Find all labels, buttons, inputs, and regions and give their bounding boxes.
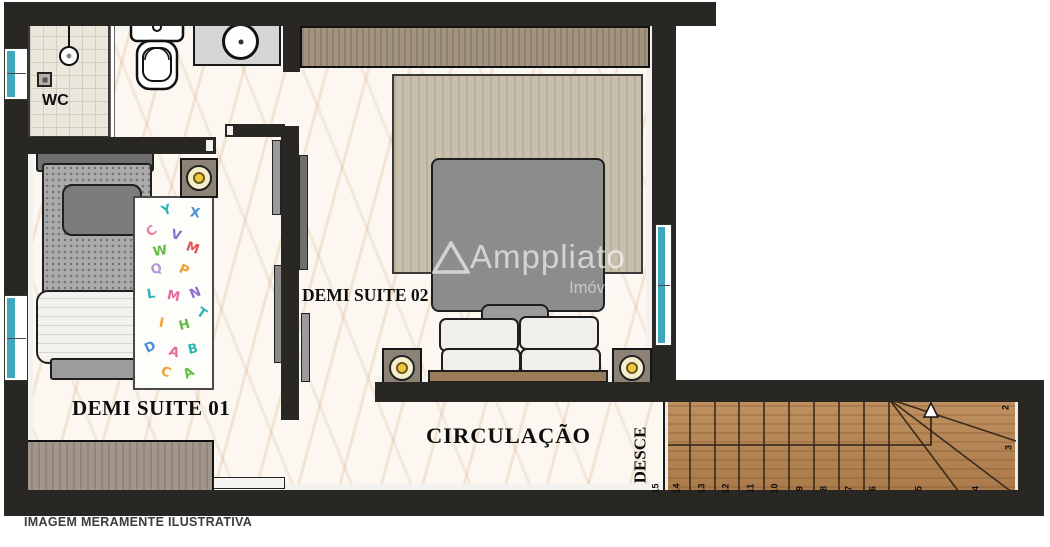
rug-letter: N — [188, 285, 204, 303]
wardrobe-suite01 — [22, 440, 214, 492]
stair-step-number: 14 — [671, 481, 682, 497]
wc-label: WC — [42, 92, 69, 110]
wall-wc-south — [4, 137, 216, 154]
stair-arrow-icon — [924, 403, 938, 417]
rug-letter: M — [166, 288, 182, 305]
floor-plan: WC YXCVWMQPLMNTHIDABCA DEMI SUITE 01 DEM… — [0, 0, 1050, 547]
wall-stairs-top — [652, 380, 1044, 402]
staircase — [663, 398, 1018, 497]
rug-letter: W — [152, 243, 169, 260]
stair-step-number: 15 — [650, 481, 661, 497]
double-bed-pillow — [439, 318, 519, 352]
stair-step-number: 5 — [913, 481, 924, 497]
stair-step-number: 8 — [818, 481, 829, 497]
caption: IMAGEM MERAMENTE ILUSTRATIVA — [24, 515, 252, 529]
stair-walk-line — [668, 414, 931, 445]
suite01-label: DEMI SUITE 01 — [72, 396, 230, 421]
stair-step-number: 4 — [970, 481, 981, 497]
wall-wc-east — [283, 16, 300, 72]
rug-letter: M — [184, 239, 201, 258]
rug-letter: V — [169, 227, 183, 244]
single-bed-pillow — [62, 184, 142, 236]
rug-letter: A — [181, 364, 197, 382]
stair-step-number: 2 — [1000, 400, 1011, 416]
rug-letter: B — [187, 341, 200, 358]
rug-letter: C — [144, 223, 160, 241]
wall-suite02-south — [375, 382, 652, 402]
watermark-brand: Amppliato — [470, 238, 626, 276]
rug-letter: I — [158, 316, 165, 332]
wardrobe-suite02 — [300, 26, 650, 68]
rug-letter: C — [159, 364, 173, 381]
rug-letter: Q — [149, 261, 164, 279]
rug-letter: A — [167, 344, 181, 361]
sliding-door-panel — [272, 140, 281, 215]
circulation-label: CIRCULAÇÃO — [426, 423, 591, 449]
stair-step-number: 10 — [769, 481, 780, 497]
double-bed-pillow — [519, 316, 599, 350]
wall-bottom — [4, 490, 1044, 516]
suite02-label: DEMI SUITE 02 — [302, 285, 428, 306]
wall-partition-cap — [225, 124, 285, 137]
rug-letter: T — [194, 305, 210, 322]
watermark-subtitle: Imóveis — [470, 279, 626, 298]
ceiling-light-icon — [180, 158, 218, 198]
rug-letter: D — [142, 338, 158, 356]
sliding-door-panel — [299, 155, 308, 270]
triangle-logo-icon — [432, 241, 470, 275]
stair-step-number: 13 — [696, 481, 707, 497]
stair-step-number: 3 — [1003, 440, 1014, 456]
sliding-door-panel — [301, 313, 310, 382]
rug-letter: Y — [160, 202, 174, 219]
rug-letter: H — [177, 317, 191, 334]
wall-partition — [281, 126, 299, 420]
stair-step-number: 11 — [745, 481, 756, 497]
shower-glass-partition — [110, 8, 115, 138]
rug-letter: P — [176, 262, 191, 280]
door-threshold — [213, 477, 285, 489]
wall-stairs-right — [1018, 380, 1044, 516]
shower-head-icon — [59, 46, 79, 66]
window — [4, 295, 28, 381]
wall-end-cap — [227, 126, 233, 135]
sink-icon — [222, 23, 259, 60]
wall-end-cap — [206, 140, 213, 151]
stair-step-number: 7 — [843, 481, 854, 497]
stair-step-number: 6 — [867, 481, 878, 497]
rug-letter: L — [146, 286, 156, 302]
rug-letter: X — [189, 205, 201, 221]
stair-step-number: 12 — [720, 481, 731, 497]
window — [4, 48, 28, 100]
wall-top — [6, 2, 716, 26]
toilet-icon — [128, 14, 186, 94]
stair-step-number: 9 — [794, 481, 805, 497]
shower-drain — [37, 72, 52, 87]
alphabet-rug: YXCVWMQPLMNTHIDABCA — [133, 196, 214, 390]
window — [655, 224, 672, 346]
